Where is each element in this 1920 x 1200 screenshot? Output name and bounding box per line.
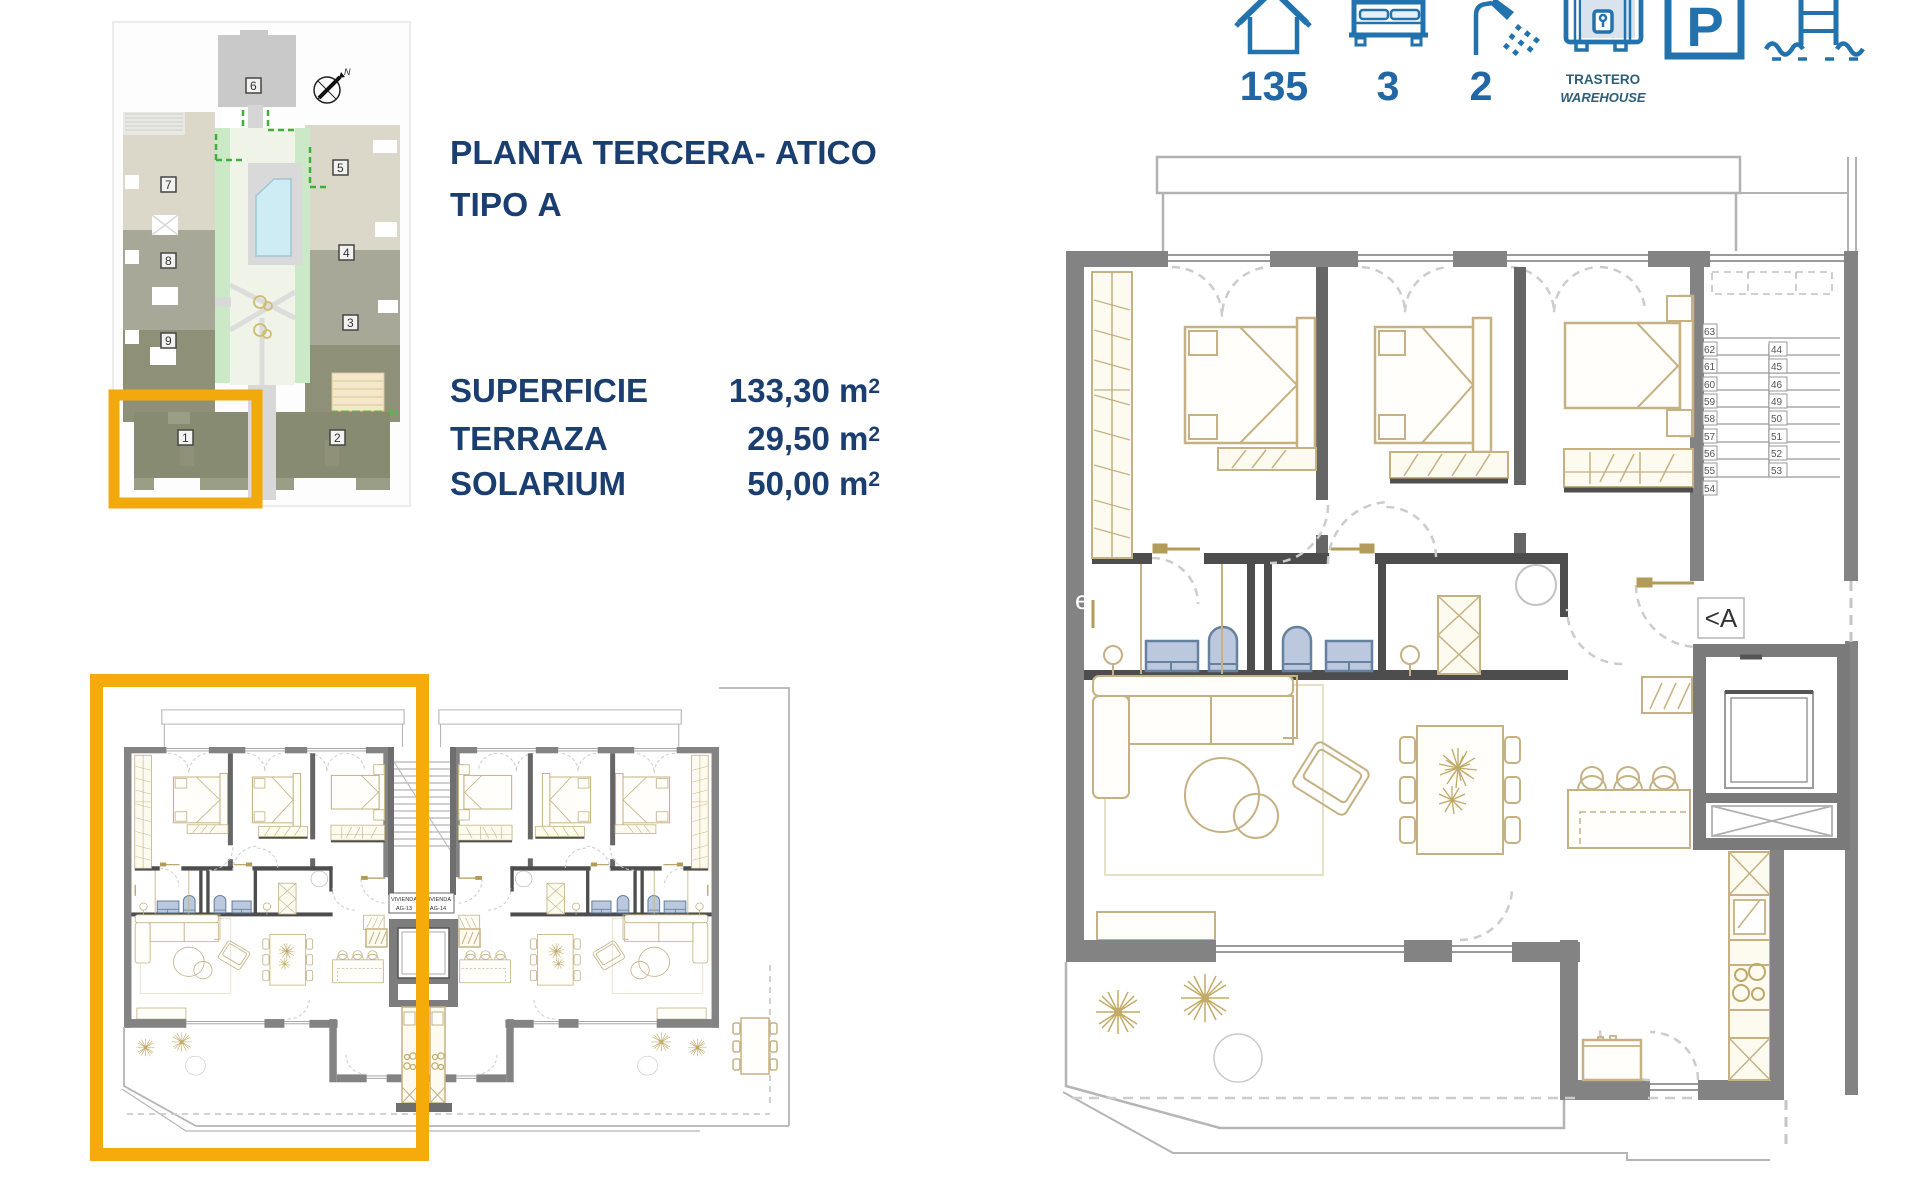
svg-text:e: e [1075, 585, 1089, 615]
svg-text:8: 8 [165, 254, 172, 268]
svg-text:2: 2 [1470, 63, 1493, 109]
svg-text:4: 4 [343, 246, 350, 260]
svg-text:6: 6 [250, 79, 257, 93]
svg-text:2: 2 [334, 431, 341, 445]
svg-text:5: 5 [337, 161, 344, 175]
svg-text:7: 7 [165, 178, 172, 192]
svg-text:TRASTERO: TRASTERO [1566, 72, 1640, 87]
svg-text:135: 135 [1240, 63, 1308, 109]
svg-text:P: P [1686, 0, 1723, 58]
svg-text:1: 1 [182, 431, 189, 445]
svg-text:9: 9 [165, 334, 172, 348]
svg-text:AG-14: AG-14 [430, 906, 446, 912]
svg-text:3: 3 [347, 316, 354, 330]
svg-text:3: 3 [1377, 63, 1400, 109]
svg-text:WAREHOUSE: WAREHOUSE [1560, 90, 1646, 105]
svg-text:N: N [344, 67, 351, 77]
